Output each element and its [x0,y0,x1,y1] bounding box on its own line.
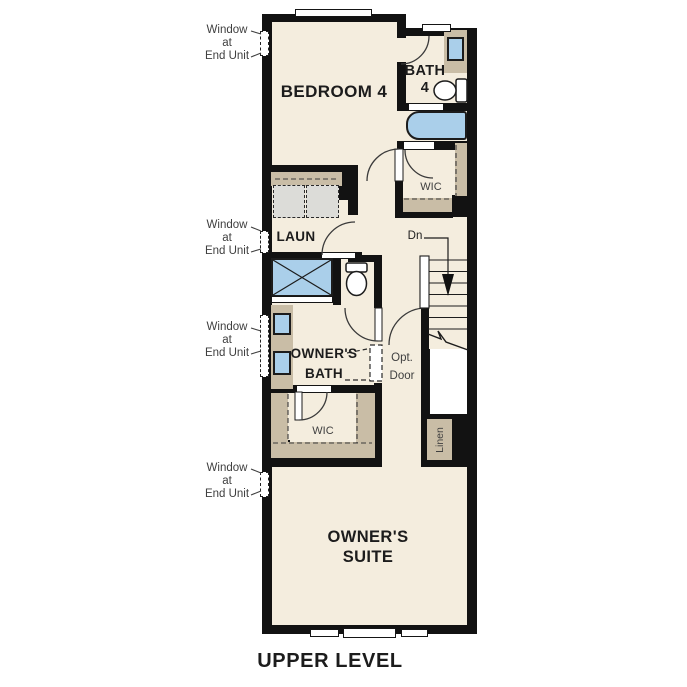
window-note-4: Window at End Unit [198,462,256,501]
plan-caption: UPPER LEVEL [230,650,430,673]
window-bottom-3 [401,629,428,637]
wall-hall-stub [348,200,358,215]
window-bottom-1 [310,629,339,637]
opt-door-label: Opt. Door [379,349,425,385]
dryer [306,185,339,218]
window-top-bedroom [295,9,372,17]
room-label-bedroom4: BEDROOM 4 [254,82,414,102]
window-end-unit-1 [260,31,269,56]
wall-wic2-block [452,195,472,217]
window-note-2: Window at End Unit [198,219,256,258]
wall-linen-bottom [421,459,477,467]
room-label-owners-bath: OWNER'S BATH [273,344,375,383]
owners-sink-1 [273,313,291,335]
room-label-linen: Linen [422,422,458,458]
owners-wic-shelf-left [271,393,288,442]
opening-wic2-door [404,141,434,150]
shower [271,258,333,297]
bathtub [406,111,467,140]
wall-wic2-bottom [403,212,453,218]
wall-owners-wic-bottom [283,458,382,467]
wall-owners-bath-right [374,383,382,467]
shower-curb [271,296,333,303]
laundry-counter [271,172,342,186]
opening-owners-wic-door [297,385,331,393]
window-note-1: Window at End Unit [198,24,256,63]
wall-right [467,28,477,634]
wic2-shelf-bottom [403,198,452,212]
window-top-bath [422,24,451,32]
room-label-owners-suite: OWNER'S SUITE [288,527,448,567]
stairwell-void [429,349,467,414]
opening-tub-wall [409,103,443,111]
owners-wic-shelf-right [356,393,375,444]
room-label-wic-bath4: WIC [407,181,455,193]
window-end-unit-4 [260,472,269,497]
washer [273,185,305,218]
wall-shower-right [333,255,341,305]
floor-plan: BEDROOM 4 BATH 4 LAUN WIC Dn OWNER'S BAT… [0,0,687,687]
room-label-wic-owners: WIC [299,425,347,437]
window-end-unit-3 [260,315,269,377]
wic2-shelf-right [455,143,467,196]
window-bottom-2 [343,628,396,638]
owners-wic-shelf-bottom [271,442,375,458]
wall-wic2-left [395,180,403,218]
room-label-laundry: LAUN [262,229,330,244]
window-note-3: Window at End Unit [198,321,256,360]
wall-toilet-niche-right [374,262,382,308]
stairs-down-label: Dn [402,230,428,242]
bath4-sink [447,37,464,61]
room-label-bath4: BATH 4 [397,63,453,96]
